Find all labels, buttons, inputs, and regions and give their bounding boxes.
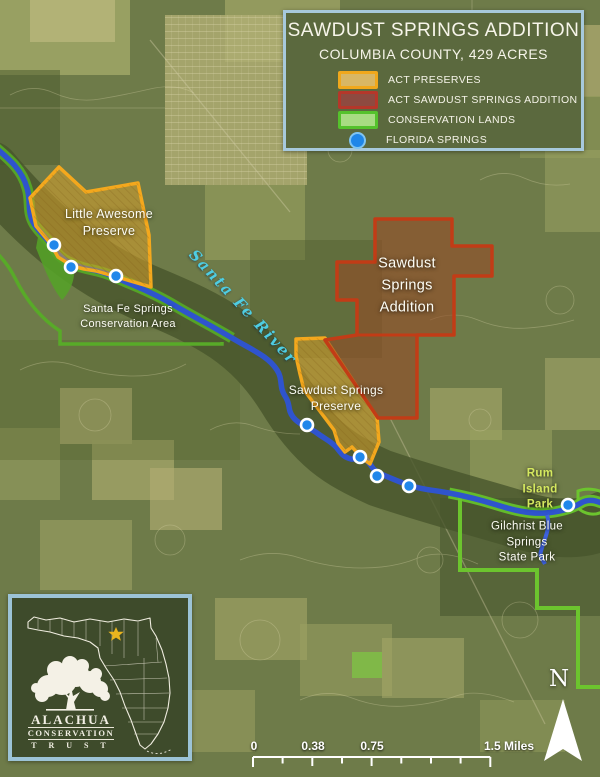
legend-row-florida-springs: FLORIDA SPRINGS	[286, 130, 581, 150]
title-legend-panel: SAWDUST SPRINGS ADDITION COLUMBIA COUNTY…	[283, 10, 584, 151]
inset-locator: ALACHUA CONSERVATION T R U S T	[8, 594, 192, 761]
spring-dot	[562, 499, 574, 511]
legend-row-act-preserves: ACT PRESERVES	[286, 70, 581, 90]
north-arrow-icon	[540, 697, 586, 767]
act-preserves-swatch	[338, 71, 378, 89]
map-subtitle: COLUMBIA COUNTY, 429 ACRES	[286, 46, 581, 62]
north-arrow-label: N	[544, 666, 574, 692]
florida-springs-dot-icon	[349, 132, 366, 149]
act-oak-tree-icon	[31, 656, 110, 711]
act-logo-line3: T R U S T	[14, 741, 128, 750]
scale-label-15miles: 1.5 Miles	[484, 739, 534, 753]
spring-dot	[403, 480, 415, 492]
spring-dot	[110, 270, 122, 282]
map-title: SAWDUST SPRINGS ADDITION	[286, 20, 581, 42]
legend-row-act-addition: ACT SAWDUST SPRINGS ADDITION	[286, 90, 581, 110]
conservation-lands-swatch	[338, 111, 378, 129]
legend: ACT PRESERVES ACT SAWDUST SPRINGS ADDITI…	[286, 70, 581, 150]
scale-label-075: 0.75	[360, 739, 383, 753]
act-logo-line1: ALACHUA	[14, 712, 128, 728]
spring-dot	[65, 261, 77, 273]
spring-dot	[371, 470, 383, 482]
map-canvas: Little Awesome Preserve Santa Fe Springs…	[0, 0, 600, 777]
logo-divider	[28, 739, 114, 740]
legend-row-conservation-lands: CONSERVATION LANDS	[286, 110, 581, 130]
location-star-icon	[108, 627, 123, 641]
scale-label-0: 0	[251, 739, 258, 753]
spring-dot	[354, 451, 366, 463]
act-addition-swatch	[338, 91, 378, 109]
spring-dot	[301, 419, 313, 431]
scale-bar	[250, 753, 495, 769]
scale-label-038: 0.38	[301, 739, 324, 753]
act-logo-line2: CONSERVATION	[14, 728, 128, 738]
spring-dot	[48, 239, 60, 251]
